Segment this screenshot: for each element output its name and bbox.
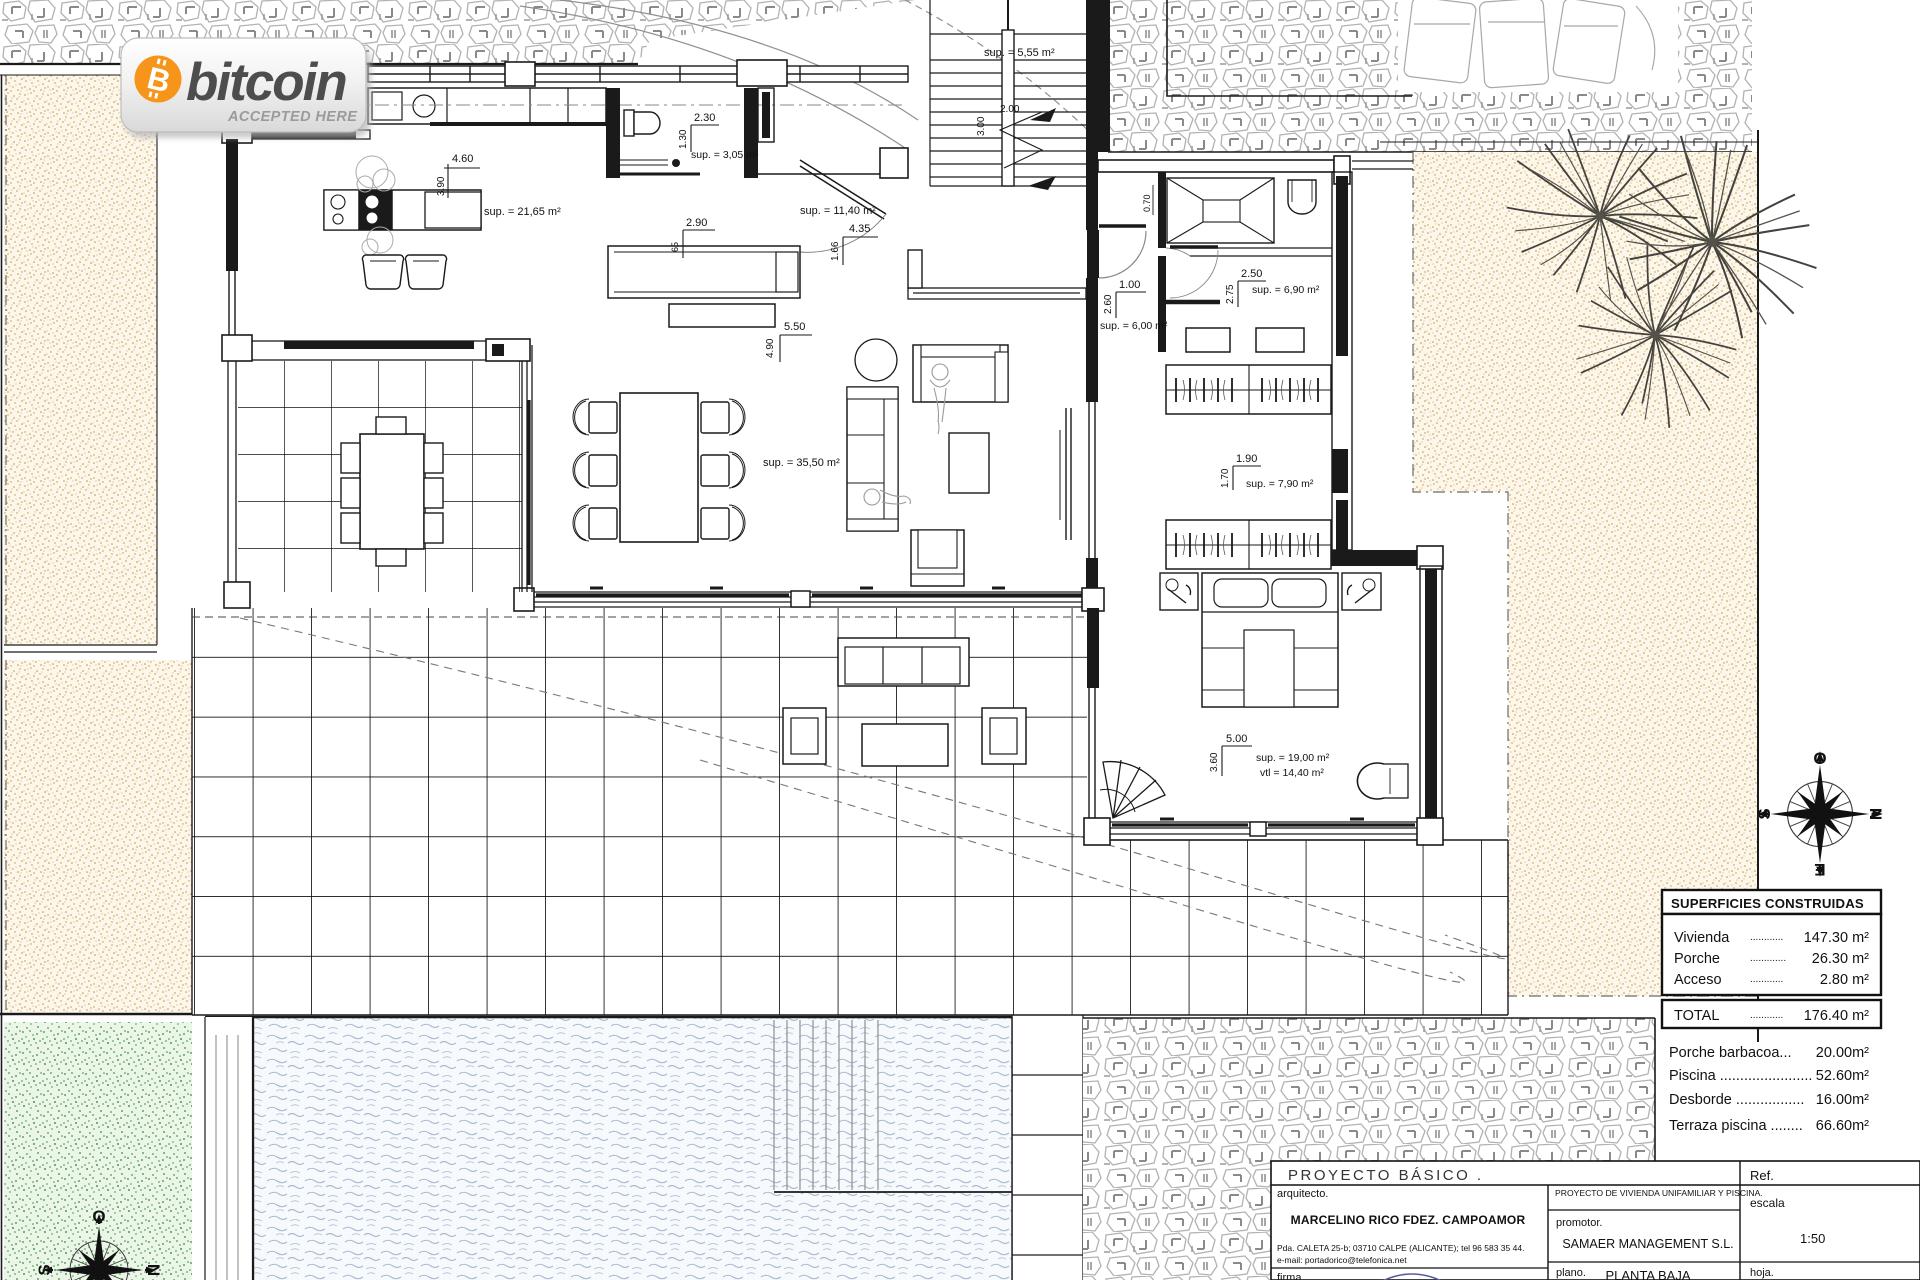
svg-text:2.75: 2.75 [1225,284,1236,304]
svg-text:4.90: 4.90 [765,338,776,358]
svg-text:vtl = 14,40 m²: vtl = 14,40 m² [1260,767,1324,779]
svg-text:PROYECTO BÁSICO .: PROYECTO BÁSICO . [1288,1167,1484,1184]
svg-text:sup. = 3,05 m²: sup. = 3,05 m² [691,149,759,161]
svg-text:1.00: 1.00 [1119,279,1140,291]
svg-text:147.30 m²: 147.30 m² [1804,930,1869,946]
svg-text:2.80 m²: 2.80 m² [1820,972,1869,988]
svg-text:3.00: 3.00 [976,116,987,136]
svg-text:.............: ............. [1750,953,1786,964]
svg-text:N: N [1866,808,1885,820]
svg-text:52.60m²: 52.60m² [1816,1068,1869,1084]
svg-text:sup. = 11,40 m²: sup. = 11,40 m² [800,205,876,217]
svg-text:bitcoin: bitcoin [186,53,346,112]
svg-text:sup. = 19,00 m²: sup. = 19,00 m² [1256,752,1330,764]
svg-text:sup. = 7,90 m²: sup. = 7,90 m² [1246,478,1314,490]
svg-text:e-mail: portadorico@telefonic: e-mail: portadorico@telefonica.net [1277,1255,1407,1265]
svg-text:Porche barbacoa...: Porche barbacoa... [1669,1045,1792,1061]
svg-text:16.00m²: 16.00m² [1816,1092,1869,1108]
svg-text:5.50: 5.50 [784,321,805,333]
svg-text:20.00m²: 20.00m² [1816,1045,1869,1061]
svg-text:sup. = 6,00 m²: sup. = 6,00 m² [1100,320,1168,332]
svg-text:1.70: 1.70 [1220,468,1231,488]
svg-text:S: S [35,1264,54,1275]
svg-text:E: E [1814,860,1825,879]
svg-text:2.00: 2.00 [1000,104,1020,115]
svg-text:firma.: firma. [1277,1272,1305,1280]
svg-text:4.35: 4.35 [849,223,870,235]
svg-text:SAMAER MANAGEMENT S.L.: SAMAER MANAGEMENT S.L. [1562,1237,1733,1251]
svg-text:N: N [144,1264,163,1276]
svg-text:1.66: 1.66 [830,241,841,261]
svg-text:0.70: 0.70 [1142,194,1152,212]
svg-text:176.40 m²: 176.40 m² [1804,1008,1869,1024]
svg-text:Terraza piscina ........: Terraza piscina ........ [1669,1118,1803,1134]
svg-text:Pda. CALETA 25-b; 03710 CA: Pda. CALETA 25-b; 03710 CALPE (ALICANTE)… [1277,1243,1524,1253]
svg-text:S: S [1755,808,1774,819]
svg-text:O: O [92,1207,105,1226]
svg-text:arquitecto.: arquitecto. [1277,1188,1328,1200]
svg-text:SUPERFICIES CONSTRUIDAS: SUPERFICIES CONSTRUIDAS [1671,896,1864,911]
svg-text:Porche: Porche [1674,951,1720,967]
svg-text:1:50: 1:50 [1800,1231,1825,1246]
svg-text:Desborde .................: Desborde ................. [1669,1092,1804,1108]
svg-text:O: O [1813,749,1826,768]
svg-text:1.90: 1.90 [1236,453,1257,465]
svg-text:PLANTA BAJA: PLANTA BAJA [1605,1268,1690,1280]
svg-text:sup. = 35,50 m²: sup. = 35,50 m² [763,457,840,469]
svg-text:65: 65 [670,242,680,252]
svg-text:Acceso: Acceso [1674,972,1722,988]
svg-text:............: ............ [1750,1010,1783,1021]
svg-text:26.30 m²: 26.30 m² [1812,951,1869,967]
svg-text:............: ............ [1750,932,1783,943]
svg-text:Ref.: Ref. [1750,1168,1774,1183]
svg-text:ACCEPTED HERE: ACCEPTED HERE [227,109,358,125]
svg-text:Vivienda: Vivienda [1674,930,1730,946]
svg-text:1.30: 1.30 [678,129,689,149]
svg-text:MARCELINO RICO FDEZ. CAMPOAMOR: MARCELINO RICO FDEZ. CAMPOAMOR [1291,1213,1526,1227]
svg-text:TOTAL: TOTAL [1674,1008,1719,1024]
svg-text:escala: escala [1750,1196,1785,1210]
svg-text:sup. = 21,65 m²: sup. = 21,65 m² [484,206,561,218]
svg-text:sup. = 6,90 m²: sup. = 6,90 m² [1252,284,1320,296]
svg-text:66.60m²: 66.60m² [1816,1118,1869,1134]
svg-text:2.30: 2.30 [694,112,715,124]
svg-text:5.00: 5.00 [1226,733,1247,745]
svg-text:3.90: 3.90 [436,176,447,196]
svg-text:............: ............ [1750,974,1783,985]
svg-text:2.90: 2.90 [686,217,707,229]
svg-text:PROYECTO DE VIVIENDA UNIFAMILI: PROYECTO DE VIVIENDA UNIFAMILIAR Y PISCI… [1555,1188,1763,1198]
svg-text:3.60: 3.60 [1209,752,1220,772]
svg-text:2.60: 2.60 [1103,294,1114,314]
svg-text:plano.: plano. [1556,1267,1586,1279]
svg-text:hoja.: hoja. [1750,1267,1774,1279]
svg-text:2.50: 2.50 [1241,268,1262,280]
svg-text:Piscina ......................: Piscina ....................... [1669,1068,1812,1084]
svg-text:promotor.: promotor. [1556,1217,1602,1229]
svg-text:sup. = 5,55 m²: sup. = 5,55 m² [984,47,1055,59]
svg-text:4.60: 4.60 [452,153,473,165]
